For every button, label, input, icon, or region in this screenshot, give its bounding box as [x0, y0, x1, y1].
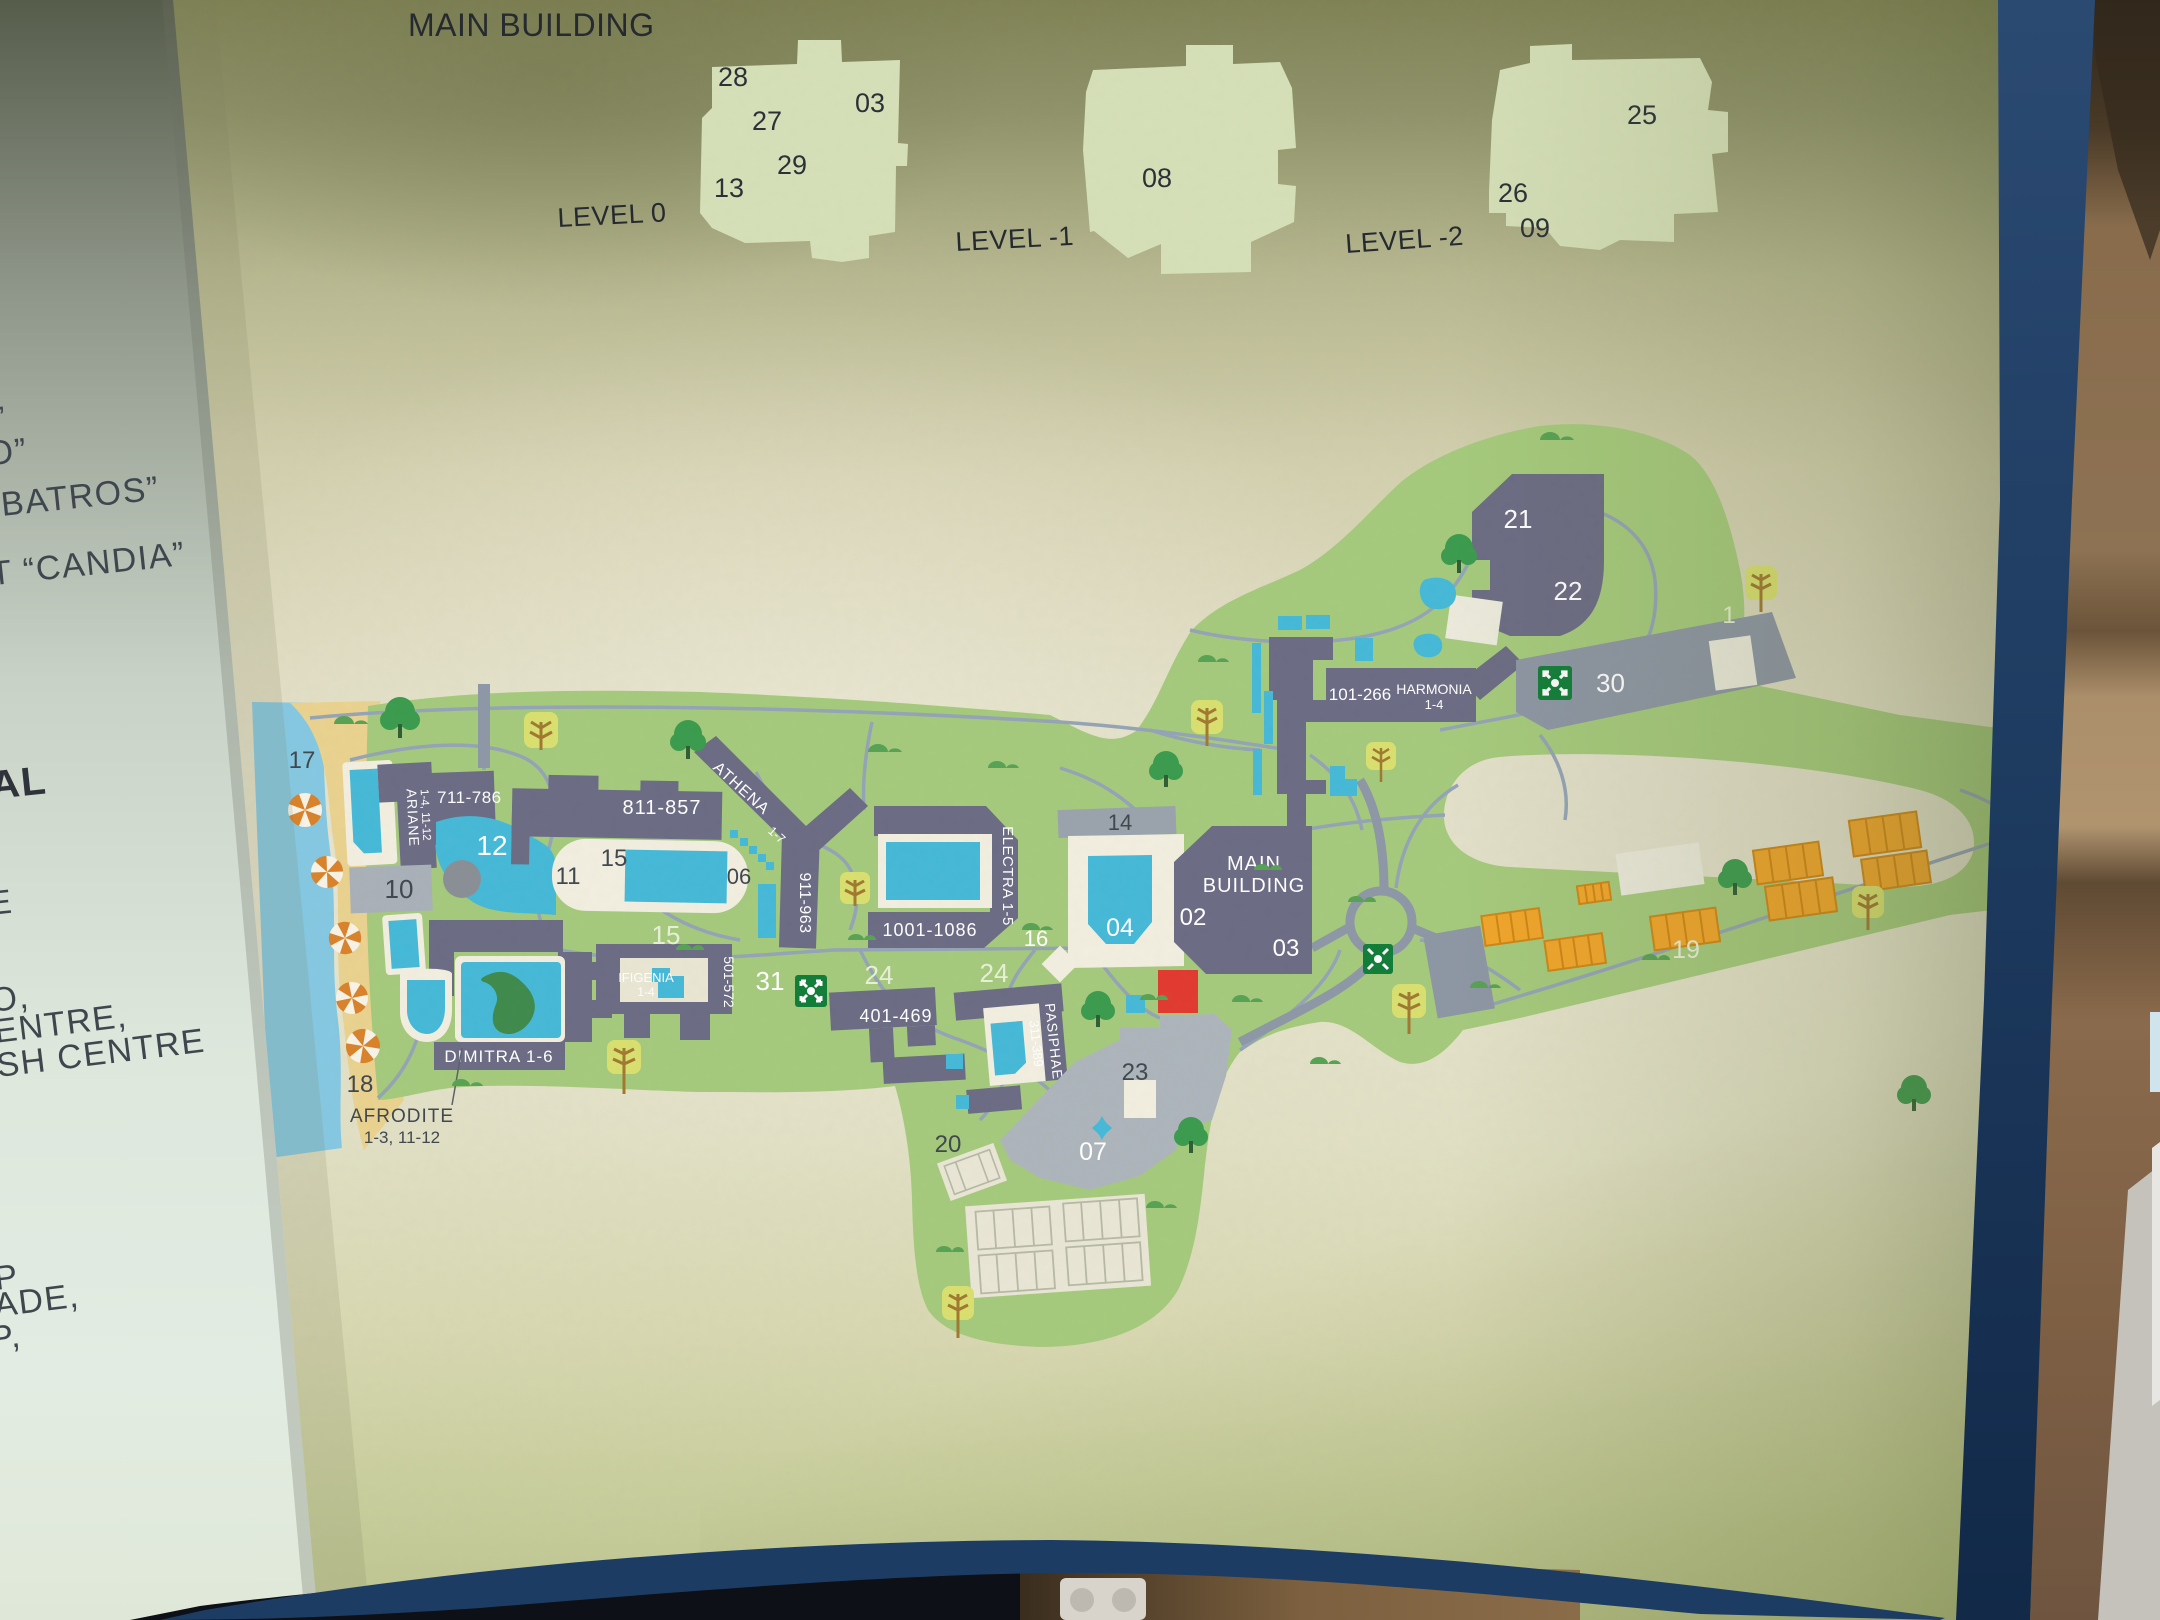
svg-text:RO”: RO” [0, 431, 29, 476]
svg-text:AL: AL [0, 758, 49, 808]
